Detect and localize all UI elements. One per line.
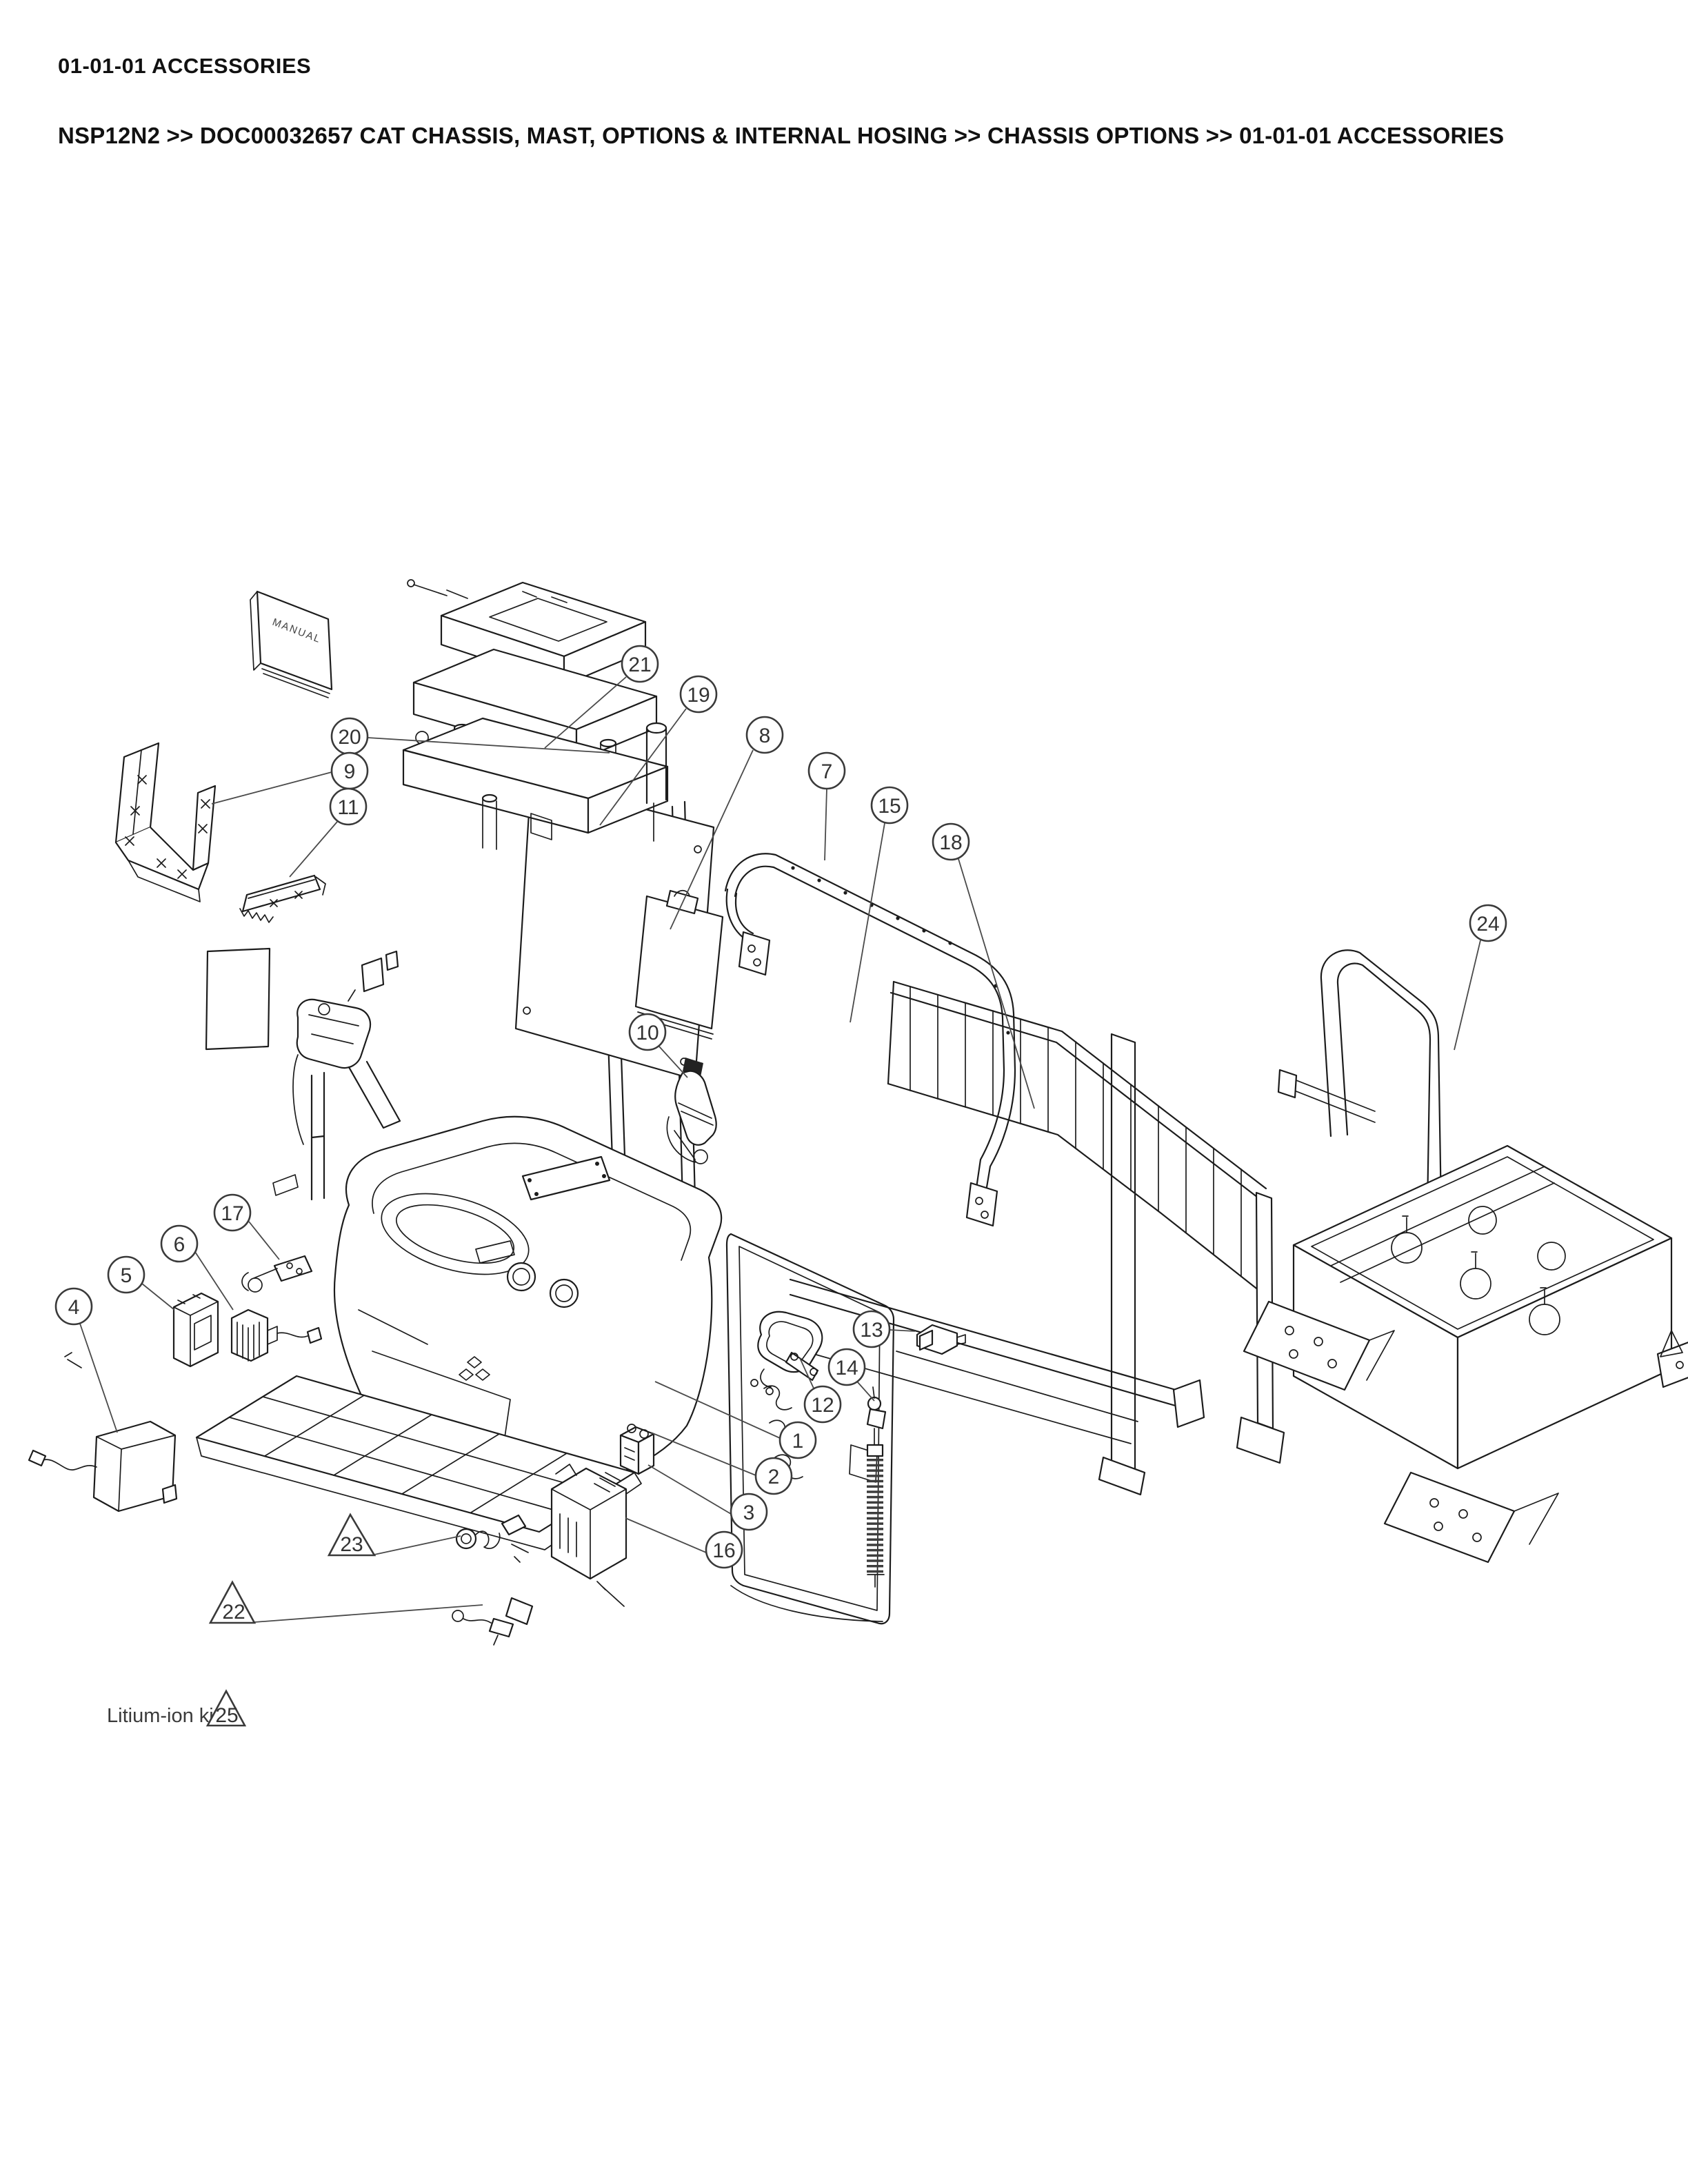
- callout-2-label: 2: [768, 1466, 780, 1488]
- callout-8-label: 8: [759, 725, 771, 747]
- callout-6[interactable]: 6: [161, 1226, 197, 1262]
- callout-22-label: 22: [222, 1601, 245, 1624]
- callout-4[interactable]: 4: [56, 1288, 92, 1324]
- callout-19[interactable]: 19: [681, 676, 716, 712]
- callout-24[interactable]: 24: [1470, 905, 1506, 941]
- mast-carriage-drawing: [403, 580, 667, 849]
- controller-assembly-drawing: [552, 1464, 626, 1606]
- battery-stand-drawing: [1244, 950, 1688, 1562]
- callout-5[interactable]: 5: [108, 1257, 144, 1293]
- battery-pack-drawing: [174, 1293, 218, 1366]
- callout-24-label: 24: [1476, 913, 1499, 936]
- bolt-drawing: [65, 1353, 81, 1368]
- callout-6-label: 6: [174, 1233, 185, 1256]
- callout-18[interactable]: 18: [933, 824, 969, 860]
- callout-5-label: 5: [121, 1264, 132, 1287]
- callout-21-label: 21: [628, 654, 651, 676]
- callout-15[interactable]: 15: [872, 787, 907, 823]
- callout-1-label: 1: [792, 1430, 804, 1453]
- lithium-kit-note-text: Litium-ion kit:: [107, 1705, 225, 1727]
- callout-2[interactable]: 2: [756, 1458, 792, 1494]
- callout-12-label: 12: [811, 1394, 834, 1417]
- callout-10-label: 10: [636, 1022, 659, 1044]
- callout-10[interactable]: 10: [630, 1014, 665, 1050]
- charger-drawing: [29, 1422, 177, 1511]
- callout-22[interactable]: 22: [210, 1582, 254, 1624]
- callout-9[interactable]: 9: [332, 753, 368, 789]
- callout-9-label: 9: [344, 760, 356, 783]
- callout-15-label: 15: [878, 795, 901, 818]
- callout-3[interactable]: 3: [731, 1494, 767, 1530]
- wall-bracket-drawing: [116, 743, 215, 902]
- side-fence-drawing: [888, 982, 1284, 1463]
- callout-13[interactable]: 13: [854, 1311, 890, 1347]
- callout-3-label: 3: [743, 1502, 755, 1524]
- callout-19-label: 19: [687, 684, 710, 707]
- callout-16-label: 16: [712, 1539, 735, 1562]
- callout-25-label: 25: [215, 1704, 238, 1727]
- callout-20[interactable]: 20: [332, 718, 368, 754]
- callout-7[interactable]: 7: [809, 753, 845, 789]
- callout-8[interactable]: 8: [747, 717, 783, 753]
- callout-13-label: 13: [860, 1319, 883, 1342]
- callout-17[interactable]: 17: [214, 1195, 250, 1231]
- callout-23[interactable]: 23: [329, 1515, 374, 1556]
- callout-4-label: 4: [68, 1296, 80, 1319]
- exploded-diagram: MANUAL: [0, 0, 1688, 2184]
- callout-18-label: 18: [939, 831, 962, 854]
- connector-block-drawing: [917, 1325, 965, 1354]
- converter-module-drawing: [232, 1310, 321, 1361]
- lithium-kit-note: Litium-ion kit: 25: [107, 1691, 245, 1727]
- callout-12[interactable]: 12: [805, 1386, 841, 1422]
- callout-23-label: 23: [340, 1533, 363, 1556]
- callout-17-label: 17: [221, 1202, 243, 1225]
- callout-7-label: 7: [821, 760, 833, 783]
- callout-16[interactable]: 16: [706, 1532, 742, 1568]
- clamp-drawing: [242, 1256, 312, 1292]
- manual-book-drawing: MANUAL: [250, 591, 332, 698]
- callout-1[interactable]: 1: [780, 1422, 816, 1458]
- parts-catalog-page: 01-01-01 ACCESSORIES NSP12N2 >> DOC00032…: [0, 0, 1688, 2184]
- comb-strip-drawing: [240, 876, 325, 922]
- callout-14-label: 14: [835, 1357, 858, 1379]
- callout-20-label: 20: [338, 726, 361, 749]
- sensor-cable-drawing: [452, 1598, 532, 1645]
- callout-14[interactable]: 14: [829, 1349, 865, 1385]
- callout-21[interactable]: 21: [622, 646, 658, 682]
- grommet-pigtail-drawing: [456, 1515, 528, 1562]
- callout-11-label: 11: [337, 796, 359, 819]
- callout-11[interactable]: 11: [330, 789, 366, 825]
